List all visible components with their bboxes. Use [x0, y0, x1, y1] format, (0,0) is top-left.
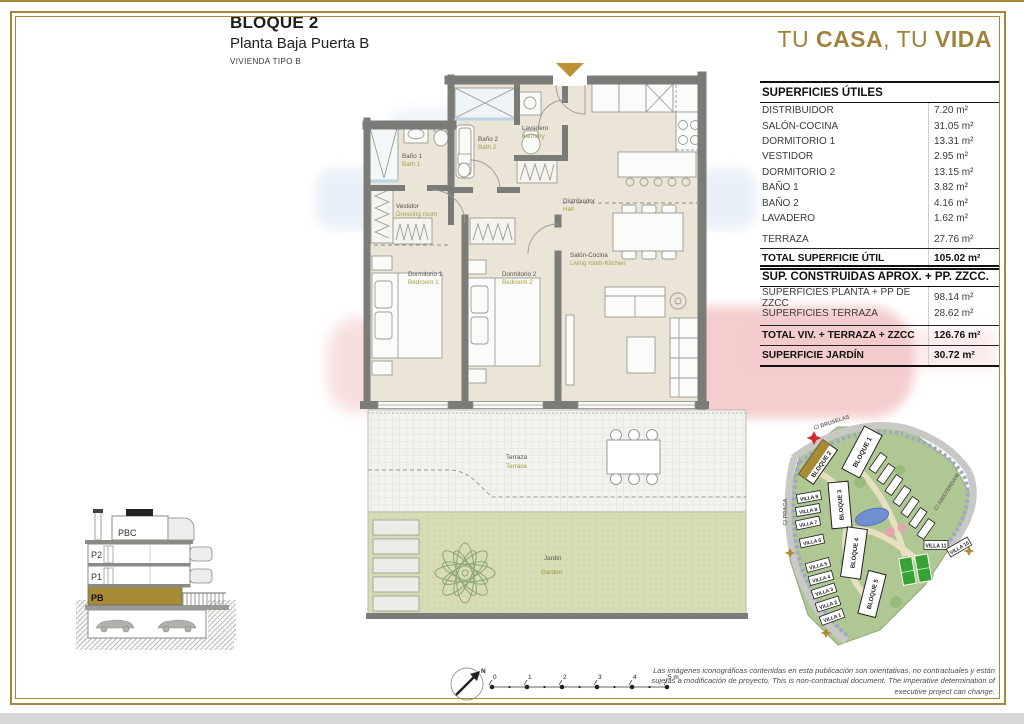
row-value: 105.02 m² [926, 253, 998, 264]
section-floor-p2: P2 [88, 544, 212, 566]
disclaimer-text: Las imágenes iconográficas contenidas en… [650, 666, 995, 697]
row-label: DORMITORIO 2 [762, 167, 926, 178]
north-arrow-icon: N [451, 668, 486, 700]
svg-text:0: 0 [493, 674, 497, 681]
table-row: LAVADERO1.62 m² [760, 211, 1000, 226]
svg-text:Terrace: Terrace [506, 463, 527, 470]
floor-label-pb: PB [91, 593, 104, 603]
row-value: 126.76 m² [926, 330, 998, 341]
label-distribuidor: Distribuidor [563, 198, 595, 205]
section-floor-pb: PB [88, 587, 226, 605]
street-praga: C/ PRAGA [783, 499, 789, 526]
table-title: SUP. CONSTRUIDAS APROX. + PP. ZZCC. [760, 265, 1000, 287]
row-value: 31.05 m² [926, 121, 998, 132]
section-floor-pbc: PBC [85, 509, 194, 544]
row-label: SALÓN-COCINA [762, 121, 926, 132]
slogan-part: TU [777, 26, 816, 52]
floor-plan: Baño 1 Bath 1 Baño 2 Bath 2 Lavadero Lau… [315, 55, 760, 625]
row-value: 2.95 m² [926, 151, 998, 162]
bottom-gray-strip [0, 713, 1024, 724]
svg-text:4: 4 [633, 674, 637, 681]
label-dorm2: Dormitorio 2 [502, 271, 537, 278]
table-total-row: TOTAL VIV. + TERRAZA + ZZCC126.76 m² [760, 325, 1000, 345]
table-row: SUPERFICIES TERRAZA28.62 m² [760, 305, 1000, 320]
row-label: TOTAL SUPERFICIE ÚTIL [762, 253, 926, 264]
row-value: 7.20 m² [926, 105, 998, 116]
dwelling-type: VIVIENDA TIPO B [230, 57, 369, 66]
label-vestidor: Vestidor [396, 203, 419, 210]
garden-area [366, 512, 748, 619]
brochure-page: BLOQUE 2 Planta Baja Puerta B VIVIENDA T… [0, 0, 1024, 724]
table-row: TERRAZA27.76 m² [760, 232, 1000, 247]
superficies-utiles-table: SUPERFICIES ÚTILES DISTRIBUIDOR7.20 m² S… [760, 81, 1000, 270]
row-value: 4.16 m² [926, 198, 998, 209]
svg-text:Bedroom 2: Bedroom 2 [502, 279, 533, 286]
svg-text:2: 2 [563, 674, 567, 681]
row-label: VESTIDOR [762, 151, 926, 162]
page-title: BLOQUE 2 [230, 13, 369, 33]
table-row: BAÑO 24.16 m² [760, 195, 1000, 210]
slogan-part-bold: CASA [816, 26, 883, 52]
table-jardin-row: SUPERFICIE JARDÍN30.72 m² [760, 345, 1000, 365]
row-label: BAÑO 2 [762, 198, 926, 209]
superficies-construidas-table: SUP. CONSTRUIDAS APROX. + PP. ZZCC. SUPE… [760, 265, 1000, 367]
row-label: SUPERFICIES TERRAZA [762, 308, 926, 319]
svg-text:Bath 1: Bath 1 [402, 161, 421, 168]
svg-text:Bath 2: Bath 2 [478, 144, 497, 151]
svg-text:Laundry: Laundry [522, 133, 546, 140]
row-value: 13.15 m² [926, 167, 998, 178]
table-row: DISTRIBUIDOR7.20 m² [760, 103, 1000, 118]
row-label: LAVADERO [762, 213, 926, 224]
building-section: PB P1 P2 PB [70, 502, 245, 657]
title-block: BLOQUE 2 Planta Baja Puerta B VIVIENDA T… [230, 13, 369, 66]
row-value: 28.62 m² [926, 308, 998, 319]
row-value: 30.72 m² [926, 350, 998, 361]
svg-text:3: 3 [598, 674, 602, 681]
terrace-table [607, 430, 660, 485]
label-dorm1: Dormitorio 1 [408, 271, 443, 278]
site-plan: BLOQUE 1 BLOQUE 2 BLOQUE 3 BLOQUE 4 BLOQ… [752, 402, 1010, 650]
svg-text:Bedroom 1: Bedroom 1 [408, 279, 439, 286]
label-bano2: Baño 2 [478, 136, 498, 143]
slogan-part: , TU [883, 26, 935, 52]
label-salon: Salón-Cocina [570, 252, 608, 259]
table-row: DORMITORIO 213.15 m² [760, 165, 1000, 180]
row-value: 3.82 m² [926, 182, 998, 193]
svg-text:Hall: Hall [563, 206, 574, 213]
floor-label-p1: P1 [91, 572, 102, 582]
section-floor-p1: P1 [88, 566, 212, 587]
row-value: 1.62 m² [926, 213, 998, 224]
row-label: SUPERFICIE JARDÍN [762, 350, 926, 361]
page-subtitle: Planta Baja Puerta B [230, 35, 369, 52]
garden-steps [373, 520, 419, 611]
top-gold-line [0, 0, 1024, 2]
brand-slogan: TU CASA, TU VIDA [700, 26, 992, 53]
table-title: SUPERFICIES ÚTILES [760, 81, 1000, 103]
table-row: DORMITORIO 113.31 m² [760, 134, 1000, 149]
row-label: TOTAL VIV. + TERRAZA + ZZCC [762, 330, 926, 341]
table-row: SALÓN-COCINA31.05 m² [760, 118, 1000, 133]
slogan-part-bold: VIDA [935, 26, 992, 52]
windows [378, 402, 695, 409]
row-value: 13.31 m² [926, 136, 998, 147]
terrace-area [368, 410, 746, 512]
row-label: TERRAZA [762, 234, 926, 245]
row-label: DORMITORIO 1 [762, 136, 926, 147]
label-bano1: Baño 1 [402, 153, 422, 160]
svg-text:Living room-Kitchen: Living room-Kitchen [570, 260, 626, 267]
site-bloque3: BLOQUE 3 [828, 481, 852, 529]
table-row: SUPERFICIES PLANTA + PP DE ZZCC98.14 m² [760, 290, 1000, 305]
label-terraza: Terraza [506, 454, 527, 461]
svg-text:VILLA 11: VILLA 11 [926, 544, 947, 550]
label-lavadero: Lavadero [522, 125, 549, 132]
floor-label-p2: P2 [91, 550, 102, 560]
svg-text:1: 1 [528, 674, 532, 681]
table-row: VESTIDOR2.95 m² [760, 149, 1000, 164]
row-label: BAÑO 1 [762, 182, 926, 193]
svg-text:N: N [481, 668, 486, 675]
row-value: 98.14 m² [926, 292, 998, 303]
floor-label-pbc: PBC [118, 528, 137, 538]
svg-text:Garden: Garden [541, 569, 563, 576]
svg-text:Dressing room: Dressing room [396, 211, 437, 218]
basement-garage [85, 605, 229, 638]
scale-bar: N 0 1 2 3 4 5 m [438, 658, 683, 706]
row-label: DISTRIBUIDOR [762, 105, 926, 116]
label-jardin: Jardín [544, 555, 562, 562]
row-value: 27.76 m² [926, 234, 998, 245]
table-row: BAÑO 13.82 m² [760, 180, 1000, 195]
